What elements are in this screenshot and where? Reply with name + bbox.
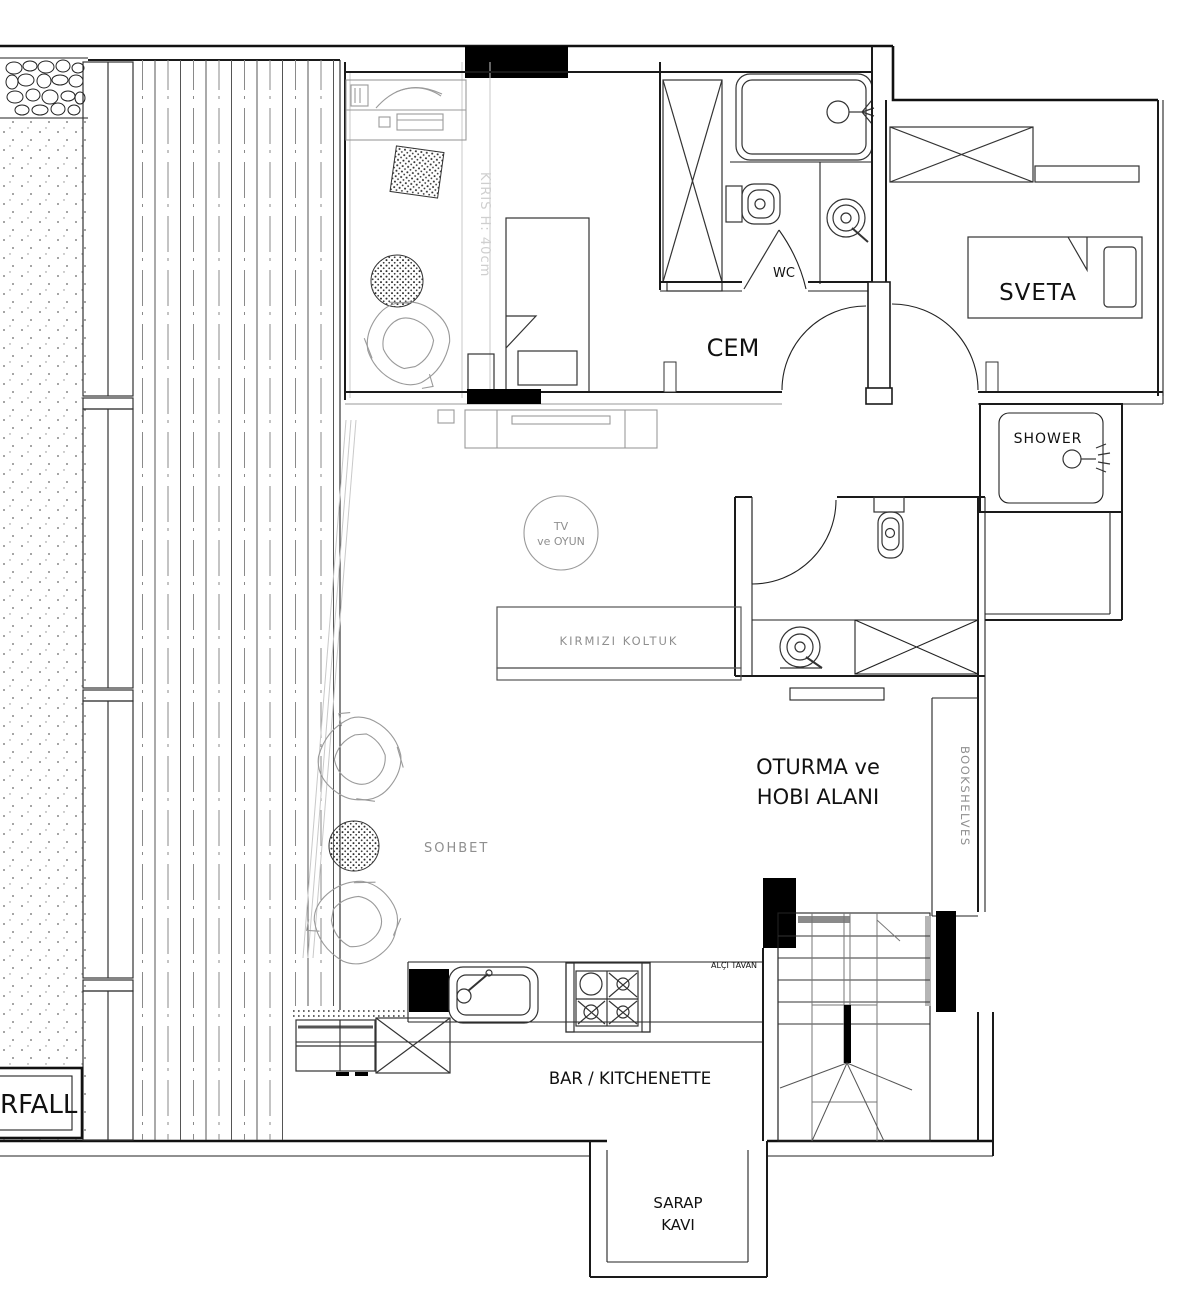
bookshelves-label: BOOKSHELVES: [958, 746, 972, 847]
tv-zone-label1: TV: [553, 520, 569, 533]
floor-plan: RFALL KIRIS H: 40cm: [0, 0, 1200, 1289]
oturma-label2: HOBI ALANI: [757, 785, 879, 809]
wc-label: WC: [773, 266, 795, 281]
bath-cabinet: [855, 620, 978, 674]
stair-treads: [778, 936, 930, 1024]
bathroom: [735, 497, 985, 912]
sveta-label: SVETA: [999, 280, 1077, 306]
wall-stub: [986, 362, 998, 392]
wall-fill-stair-right: [936, 911, 956, 1012]
bar-label: BAR / KITCHENETTE: [549, 1069, 711, 1088]
tv-zone-circle: [524, 496, 598, 570]
cabinet-x: [376, 1018, 450, 1073]
bookshelves: BOOKSHELVES: [932, 698, 978, 916]
sveta-room: SVETA: [782, 100, 1163, 404]
tv-zone-label2: ve OYUN: [537, 535, 585, 548]
wc-room: WC: [660, 46, 874, 291]
bathtub: [736, 74, 874, 160]
waterfall-label: RFALL: [0, 1090, 78, 1120]
study-room: KIRIS H: 40cm: [345, 62, 492, 401]
oturma-label1: OTURMA ve: [756, 755, 880, 779]
kitchen-sink: [449, 967, 538, 1023]
door-stub: [866, 388, 892, 404]
washing-machine-bath: [780, 627, 822, 668]
shower-room: SHOWER: [980, 404, 1122, 620]
wall-stub: [664, 362, 676, 392]
washing-machine-wc: [827, 199, 868, 242]
wall-fill-kitchen: [409, 969, 449, 1012]
toilet-wc: [726, 184, 780, 224]
stair-landing-bar: [798, 916, 850, 923]
door-spine-wall: [868, 282, 890, 390]
wine-cellar: SARAP KAVI: [590, 1141, 767, 1277]
stipple-ground: [0, 118, 86, 1140]
sveta-wardrobe: [890, 127, 1139, 182]
deck-planks: [136, 60, 340, 1006]
square-pouf: [390, 146, 444, 198]
shower-label: SHOWER: [1014, 431, 1083, 447]
wall-shelf: [790, 688, 884, 700]
wall-fill-top: [465, 46, 568, 78]
bath-door-swing: [752, 500, 836, 584]
stair-structure: [812, 913, 900, 1141]
beam-label: KIRIS H: 40cm: [477, 172, 492, 277]
wc-closet: [663, 80, 722, 291]
sarap-label2: KAVI: [661, 1216, 695, 1234]
wall-fill-cem: [467, 389, 541, 404]
low-cabinet: [296, 1020, 375, 1076]
sofa-label: KIRMIZI KOLTUK: [560, 634, 679, 648]
deck-pillar-wall: [83, 62, 133, 1140]
sarap-label1: SARAP: [653, 1194, 702, 1212]
kitchen: ALÇI TAVAN BAR / KITCHENETTE: [293, 961, 763, 1088]
door-swing-left: [782, 306, 866, 390]
sohbet-label: SOHBET: [424, 841, 489, 856]
deck: [83, 60, 356, 1140]
dotted-strip: [293, 1011, 407, 1016]
tv-console: [438, 410, 657, 448]
toilet-bath: [874, 497, 904, 558]
round-pouf: [371, 255, 423, 307]
pebble-strip: [0, 58, 88, 118]
stairs: [763, 878, 993, 1156]
floor-plan-canvas: RFALL KIRIS H: 40cm: [0, 0, 1200, 1289]
ceiling-label: ALÇI TAVAN: [711, 961, 757, 970]
desk: [346, 80, 466, 140]
door-swing-right: [892, 304, 978, 390]
waterfall-box: RFALL: [0, 1068, 82, 1138]
cem-label: CEM: [707, 334, 760, 362]
round-pouf: [329, 821, 379, 871]
